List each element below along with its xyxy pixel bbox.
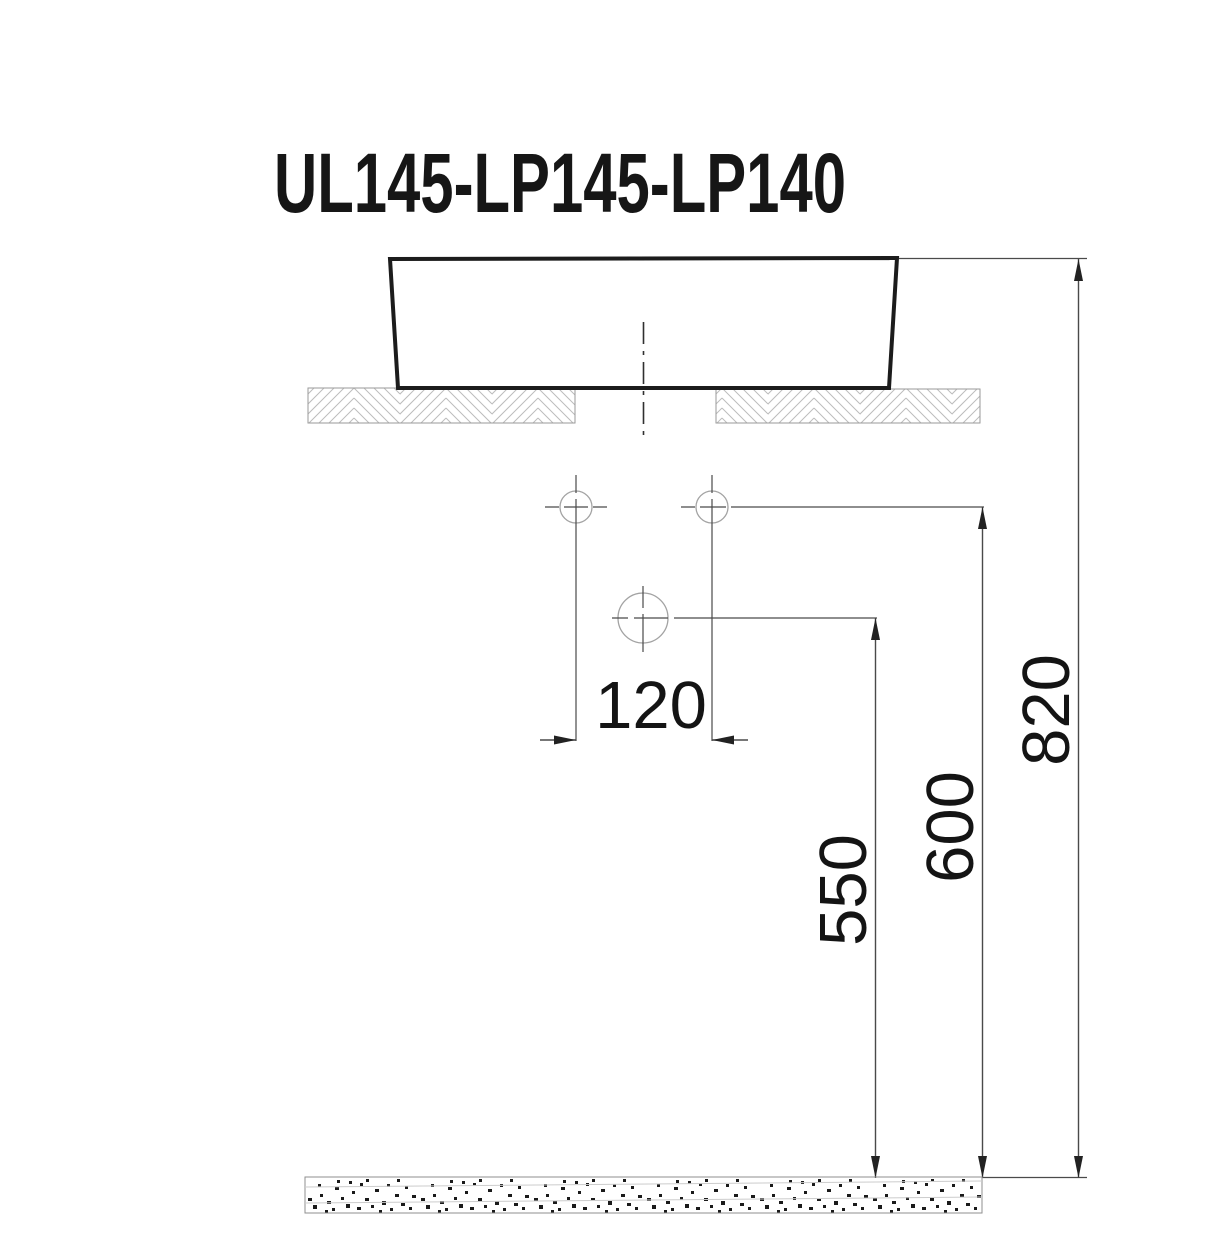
arrow-up-icon	[978, 507, 987, 529]
arrow-down-icon	[871, 1156, 880, 1178]
drawing-canvas: UL145-LP145-LP140 120 550	[0, 0, 1215, 1240]
dimension-550: 550	[806, 618, 881, 1178]
arrow-down-icon	[1074, 1156, 1083, 1178]
arrow-right-icon	[554, 736, 576, 745]
dimension-600: 600	[913, 507, 988, 1178]
drawing-title: UL145-LP145-LP140	[274, 136, 846, 230]
faucet-hole-right	[681, 475, 984, 741]
dimension-120-label: 120	[595, 668, 707, 743]
dimension-550-label: 550	[806, 834, 881, 946]
arrow-left-icon	[712, 736, 734, 745]
dimension-120: 120	[540, 668, 748, 745]
countertop-section-left	[308, 388, 575, 423]
countertop-section-right	[716, 389, 980, 423]
dimension-600-label: 600	[913, 771, 988, 883]
drain-outlet-hole	[612, 586, 877, 652]
arrow-up-icon	[1074, 259, 1083, 281]
arrow-down-icon	[978, 1156, 987, 1178]
technical-drawing-basin-installation: UL145-LP145-LP140 120 550	[0, 0, 1215, 1240]
arrow-up-icon	[871, 618, 880, 640]
dimension-820-label: 820	[1009, 654, 1084, 766]
floor	[305, 1177, 982, 1213]
